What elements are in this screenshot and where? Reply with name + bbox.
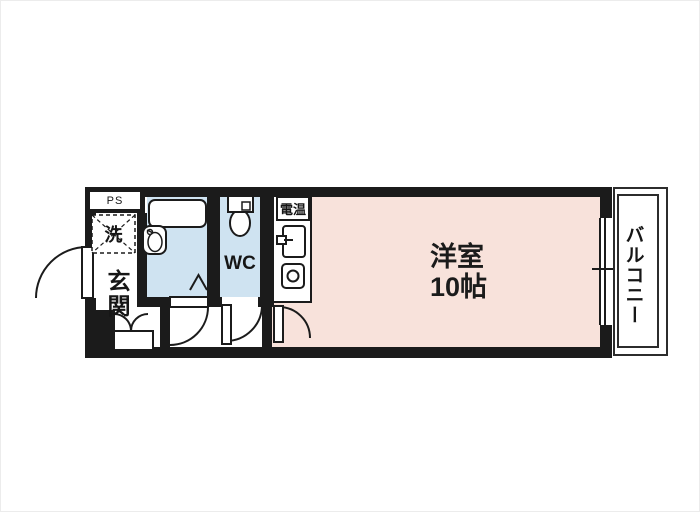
door-arc bbox=[170, 307, 208, 345]
window-sashes bbox=[600, 218, 605, 325]
pan-drain bbox=[288, 271, 299, 282]
door-leaf bbox=[170, 297, 208, 307]
main-room-label: 洋室 10帖 bbox=[430, 242, 550, 302]
bathroom-door-swing-icon bbox=[170, 297, 208, 345]
door-leaf bbox=[222, 305, 231, 344]
balcony-window-icon bbox=[592, 218, 613, 325]
water-heater-label: 電温 bbox=[276, 196, 310, 221]
room-name: 洋室 bbox=[430, 242, 550, 272]
door-arc bbox=[36, 247, 87, 298]
bathtub-icon bbox=[149, 200, 206, 227]
entrance-label: 玄関 bbox=[97, 252, 137, 336]
entrance-door-swing-icon bbox=[36, 247, 93, 298]
sink-icon bbox=[143, 226, 166, 254]
balcony-label: バルコニー bbox=[619, 207, 647, 343]
floorplan-canvas: PS 洗 玄関 WC 電温 洋室 10帖 バルコニー bbox=[0, 0, 700, 512]
wc-label: WC bbox=[220, 250, 260, 278]
toilet-icon bbox=[228, 196, 253, 236]
water-heater-icon bbox=[277, 226, 305, 257]
door-leaf bbox=[82, 247, 93, 298]
folding-door-icon bbox=[190, 275, 207, 290]
room-door-swing-icon bbox=[274, 306, 310, 342]
toilet-bowl bbox=[230, 210, 250, 236]
ps-label: PS bbox=[90, 192, 140, 209]
door-leaf bbox=[274, 306, 283, 342]
laundry-label: 洗 bbox=[92, 215, 135, 253]
washer-pan-icon bbox=[282, 264, 304, 288]
wc-door-swing-icon bbox=[222, 305, 262, 344]
room-size: 10帖 bbox=[430, 272, 550, 302]
